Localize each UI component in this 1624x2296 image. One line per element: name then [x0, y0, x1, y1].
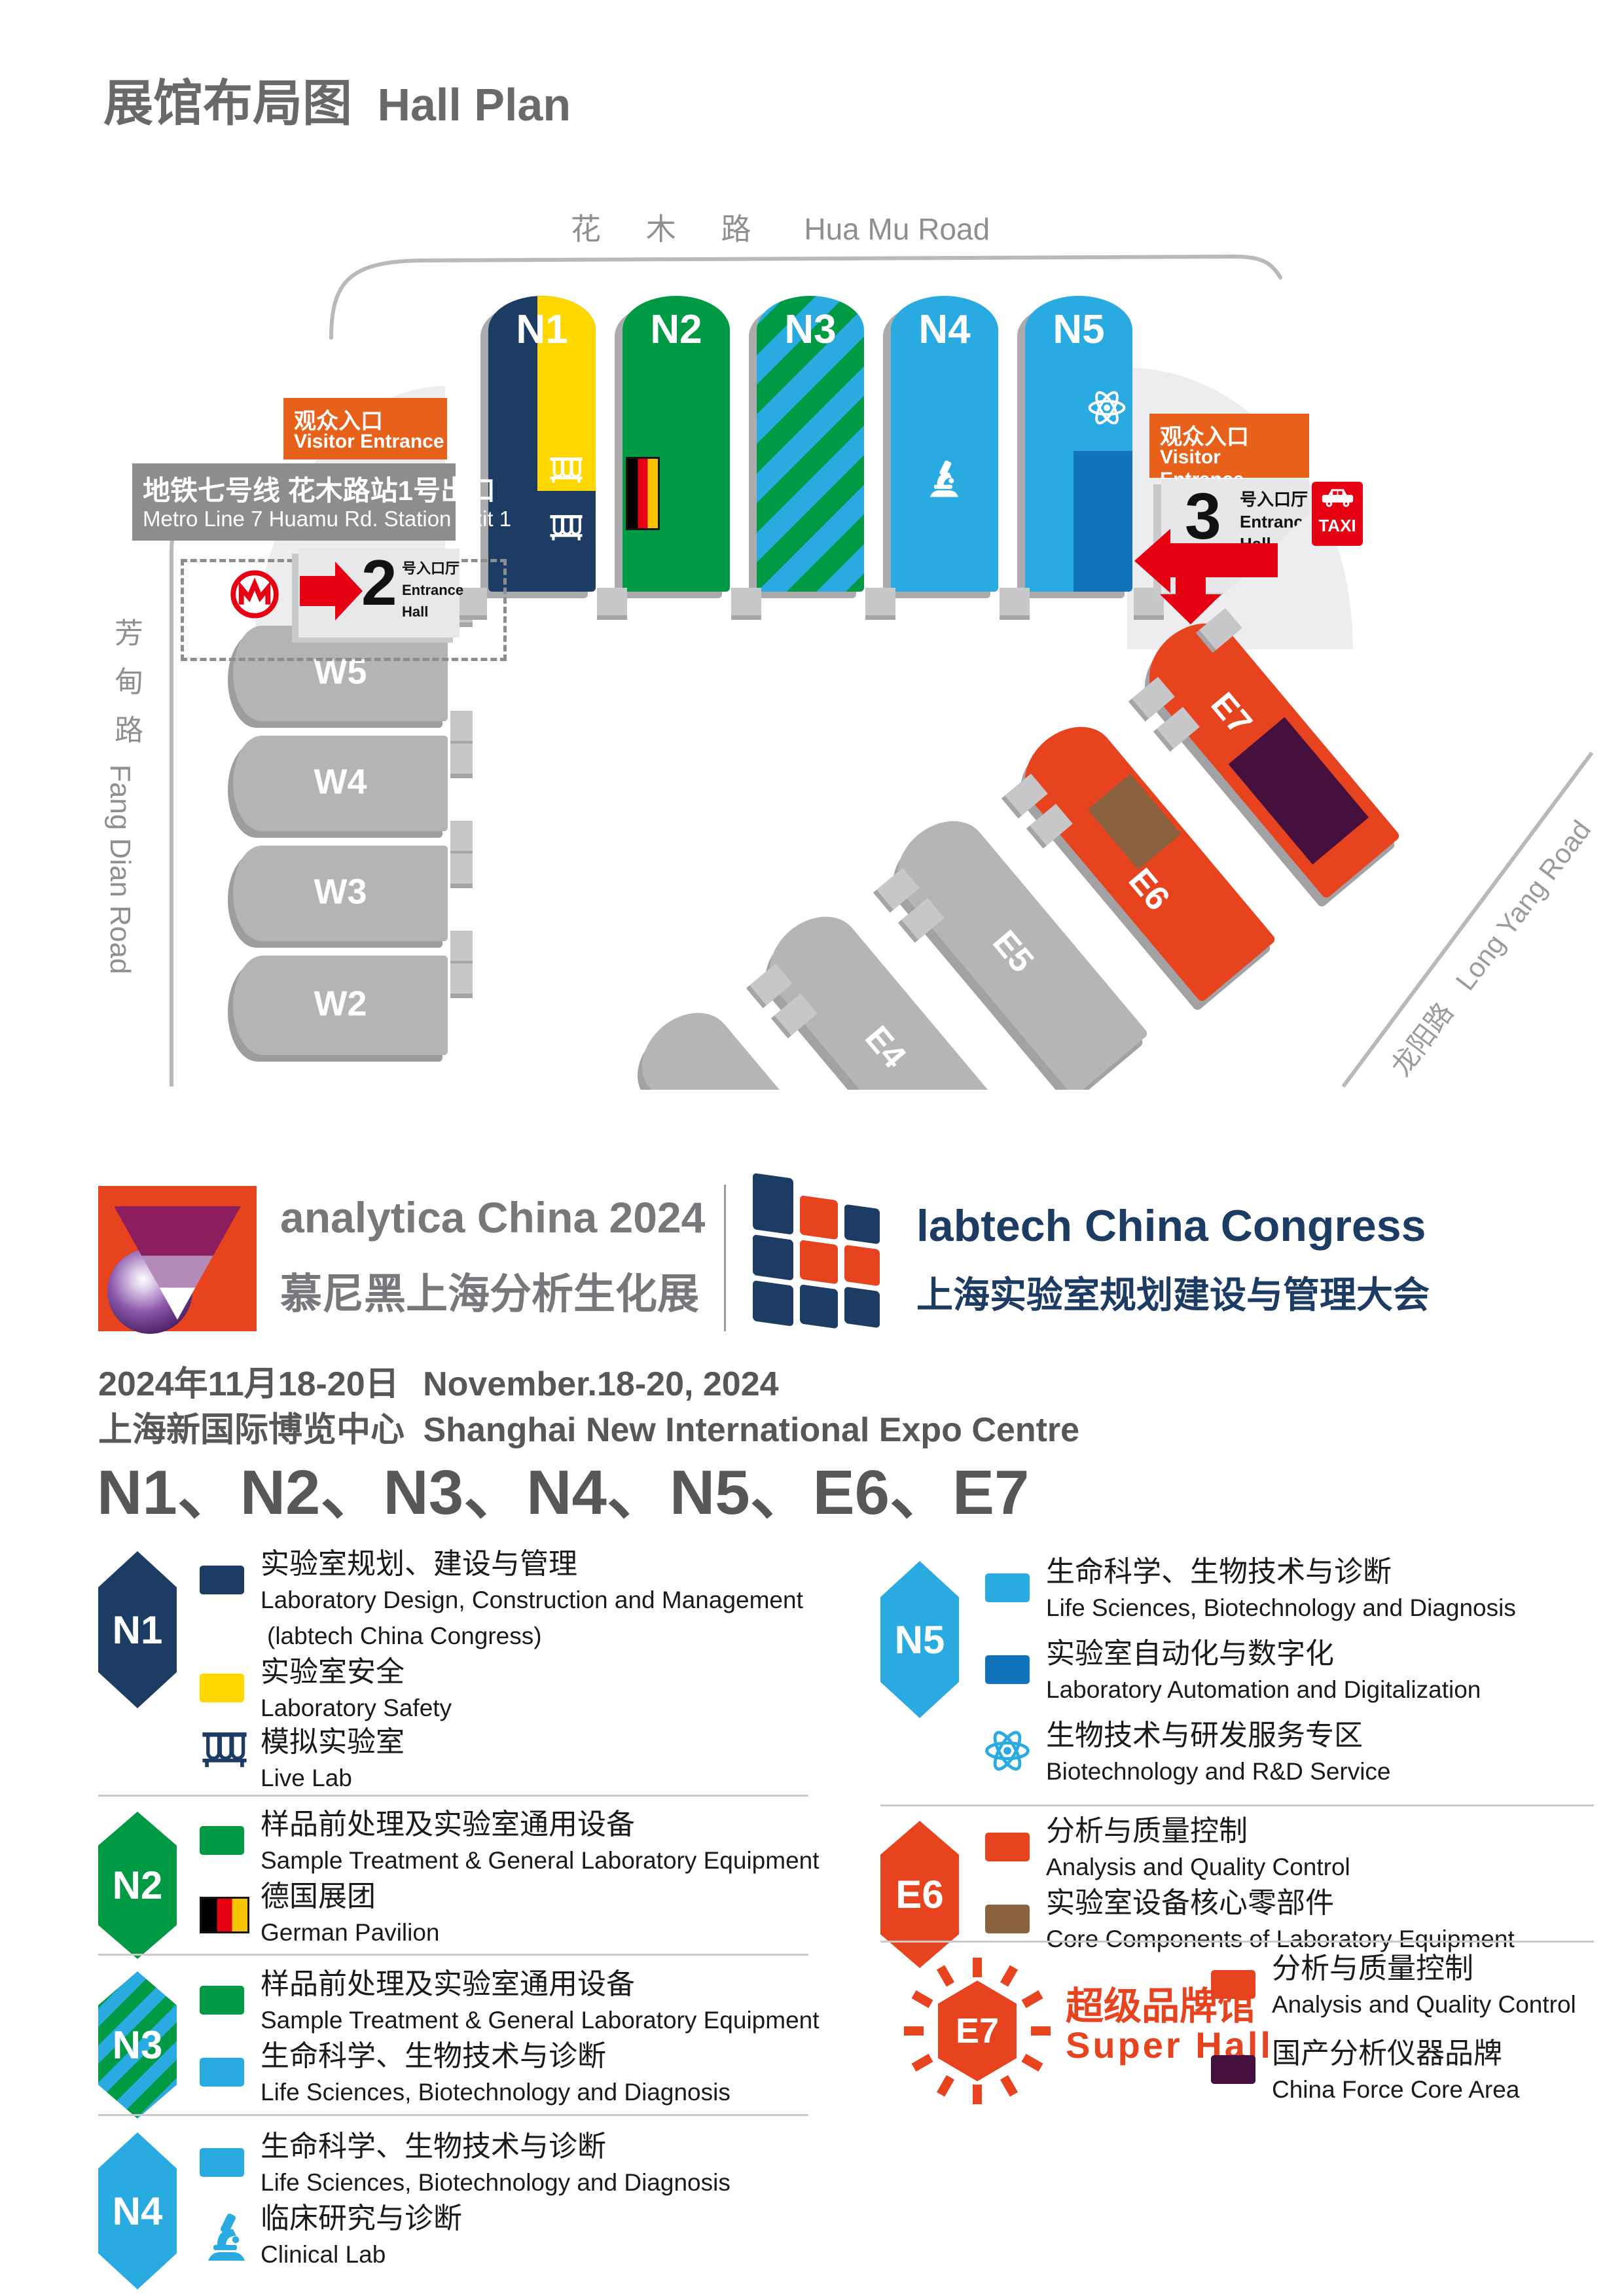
- hall-n2-label: N2: [623, 306, 730, 353]
- live-lab-icon: [549, 512, 584, 543]
- taxi-label: TAXI: [1312, 516, 1363, 536]
- legend-badge-n2-label: N2: [113, 1863, 163, 1908]
- legend-swatch-n2-sample: [200, 1826, 244, 1855]
- metro-sign-cn: 地铁七号线 花木路站1号出口: [143, 469, 496, 509]
- connector: [450, 744, 473, 774]
- legend-text-en: German Pavilion: [261, 1914, 440, 1950]
- legend-swatch-n1-safety: [200, 1674, 244, 1702]
- hall-e7-label: E7: [1203, 685, 1260, 742]
- entrance-3-cn: 号入口厅: [1240, 488, 1312, 511]
- legend-text-en: Biotechnology and R&D Service: [1046, 1753, 1391, 1789]
- biotech-rd-icon: [983, 1727, 1032, 1775]
- legend-item: 生命科学、生物技术与诊断 Life Sciences, Biotechnolog…: [261, 2128, 731, 2200]
- connector: [731, 588, 761, 615]
- legend-text-en: Analysis and Quality Control: [1272, 1986, 1576, 2022]
- labtech-tile: [753, 1173, 793, 1235]
- visitor-entrance-left-en: Visitor Entrance: [294, 431, 444, 453]
- legend-item: 德国展团 German Pavilion: [261, 1878, 440, 1950]
- huamu-road-cn: 花 木 路: [571, 212, 770, 246]
- connector: [450, 853, 473, 884]
- legend-badge-n4-label: N4: [113, 2189, 163, 2234]
- fangdian-road-en: Fang Dian Road: [103, 764, 136, 974]
- hall-plan-poster: 展馆布局图 Hall Plan 花 木 路 Hua Mu Road 芳甸路 Fa…: [0, 0, 1624, 2296]
- legend-text-cn: 分析与质量控制: [1272, 1950, 1576, 1986]
- legend-text-en: Life Sciences, Biotechnology and Diagnos…: [261, 2074, 731, 2110]
- hall-n4: N4: [891, 296, 998, 592]
- legend-item: 模拟实验室 Live Lab: [261, 1724, 405, 1796]
- legend-item: 生命科学、生物技术与诊断 Life Sciences, Biotechnolog…: [1046, 1554, 1516, 1626]
- logo-divider: [724, 1185, 726, 1331]
- hall-n4-label: N4: [891, 306, 998, 353]
- hall-n5-automation-zone: [1074, 451, 1132, 592]
- labtech-tile: [800, 1284, 838, 1329]
- connector: [597, 588, 627, 615]
- hall-n2: N2: [623, 296, 730, 592]
- live-lab-icon: [549, 454, 584, 486]
- event-date-cn: 2024年11月18-20日: [98, 1365, 399, 1403]
- hall-e6-label: E6: [1121, 861, 1178, 918]
- legend-badge-n1-label: N1: [113, 1607, 163, 1653]
- legend-divider: [880, 1941, 1594, 1943]
- legend-text-en: Laboratory Design, Construction and Mana…: [261, 1582, 803, 1618]
- legend-text-cn: 德国展团: [261, 1878, 440, 1914]
- legend-text-cn: 生物技术与研发服务专区: [1046, 1717, 1391, 1753]
- taxi-car-icon: [1318, 486, 1356, 509]
- connector: [450, 821, 473, 851]
- live-lab-icon: [200, 1728, 249, 1771]
- legend-item: 分析与质量控制 Analysis and Quality Control: [1272, 1950, 1576, 2022]
- hall-n1: N1: [488, 296, 596, 592]
- visitor-entrance-right: 观众入口 Visitor Entrance: [1149, 414, 1309, 478]
- legend-text-cn: 生命科学、生物技术与诊断: [261, 2128, 731, 2164]
- legend-item: 国产分析仪器品牌 China Force Core Area: [1272, 2036, 1519, 2108]
- legend-badge-n3-label: N3: [113, 2022, 163, 2068]
- labtech-tile: [753, 1280, 793, 1327]
- labtech-wordmark: labtech China Congress: [916, 1200, 1426, 1251]
- hall-w3: W3: [233, 846, 448, 941]
- legend-text-en: Life Sciences, Biotechnology and Diagnos…: [1046, 1590, 1516, 1626]
- legend-text-cn: 临床研究与诊断: [261, 2200, 462, 2236]
- entrance-2-text: 号入口厅 Entrance Hall: [402, 558, 463, 622]
- event-date: 2024年11月18-20日 November.18-20, 2024: [98, 1356, 779, 1405]
- legend-text-cn: 实验室安全: [261, 1654, 452, 1690]
- legend-swatch-n5-lifesci: [985, 1573, 1030, 1602]
- legend-badge-e6: E6: [880, 1821, 959, 1968]
- legend-divider: [98, 2114, 808, 2116]
- legend-divider: [98, 1795, 808, 1797]
- connector: [1000, 588, 1030, 615]
- legend-badge-n2: N2: [98, 1812, 177, 1959]
- longyang-road-line: [1343, 753, 1592, 1086]
- huamu-road-en: Hua Mu Road: [804, 212, 990, 246]
- hall-n5-label: N5: [1025, 306, 1132, 353]
- legend-item: 实验室安全 Laboratory Safety: [261, 1654, 452, 1726]
- legend-item: 样品前处理及实验室通用设备 Sample Treatment & General…: [261, 1966, 820, 2038]
- legend-item: 分析与质量控制 Analysis and Quality Control: [1046, 1813, 1350, 1885]
- route-arrow-down-icon: [1160, 594, 1221, 624]
- legend-text-cn: 实验室规划、建设与管理: [261, 1546, 803, 1582]
- legend-badge-n1: N1: [98, 1551, 177, 1708]
- german-pavilion-flag-icon: [200, 1897, 249, 1933]
- hall-w4-label: W4: [233, 762, 448, 802]
- clinical-lab-icon: [925, 459, 965, 500]
- route-arrow-stem: [1176, 577, 1206, 594]
- connector: [450, 711, 473, 741]
- legend-swatch-n4-lifesci: [200, 2148, 244, 2177]
- labtech-cn: 上海实验室规划建设与管理大会: [916, 1266, 1430, 1319]
- legend-text-en: China Force Core Area: [1272, 2072, 1519, 2108]
- legend-swatch-n1-design: [200, 1566, 244, 1594]
- metro-sign: 地铁七号线 花木路站1号出口 Metro Line 7 Huamu Rd. St…: [132, 463, 456, 541]
- entrance-2-cn: 号入口厅: [402, 558, 463, 579]
- hall-n3-label: N3: [757, 306, 864, 353]
- hall-n1-label: N1: [488, 306, 596, 353]
- connector: [450, 963, 473, 994]
- legend-text-cn: 实验室设备核心零部件: [1046, 1885, 1515, 1921]
- legend-item: 实验室规划、建设与管理 Laboratory Design, Construct…: [261, 1546, 803, 1654]
- metro-sign-en: Metro Line 7 Huamu Rd. Station Exit 1: [143, 507, 511, 531]
- entrance-2-arrowhead-icon: [335, 562, 363, 620]
- legend-badge-e7-label: E7: [956, 2011, 999, 2051]
- german-pavilion-flag-icon: [626, 457, 660, 530]
- labtech-tile: [844, 1204, 880, 1245]
- entrance-2-en1: Entrance: [402, 579, 463, 601]
- legend-text-cn: 国产分析仪器品牌: [1272, 2036, 1519, 2072]
- connector: [865, 588, 895, 615]
- clinical-lab-icon: [202, 2212, 254, 2265]
- legend-item: 样品前处理及实验室通用设备 Sample Treatment & General…: [261, 1806, 820, 1878]
- event-halls-line: N1、N2、N3、N4、N5、E6、E7: [97, 1441, 1029, 1532]
- legend-swatch-e6-components: [985, 1905, 1030, 1933]
- legend-item: 临床研究与诊断 Clinical Lab: [261, 2200, 462, 2272]
- legend-text-en: Sample Treatment & General Laboratory Eq…: [261, 1842, 820, 1878]
- legend-text-en: Laboratory Safety: [261, 1690, 452, 1726]
- hall-w2: W2: [233, 956, 448, 1055]
- labtech-tile: [800, 1240, 838, 1284]
- labtech-tile: [753, 1234, 793, 1281]
- labtech-tile: [800, 1195, 838, 1240]
- labtech-logo: [753, 1189, 897, 1352]
- labtech-tile: [844, 1287, 880, 1329]
- connector: [450, 931, 473, 961]
- legend-text-cn: 分析与质量控制: [1046, 1813, 1350, 1849]
- legend-item: 生物技术与研发服务专区 Biotechnology and R&D Servic…: [1046, 1717, 1391, 1789]
- legend-text-en: Laboratory Automation and Digitalization: [1046, 1672, 1481, 1708]
- legend-badge-n3: N3: [98, 1971, 177, 2119]
- legend-swatch-e7-chinaforce: [1211, 2055, 1255, 2084]
- legend-divider: [880, 1804, 1594, 1806]
- labtech-tile: [844, 1245, 880, 1287]
- visitor-entrance-left: 观众入口 Visitor Entrance: [283, 398, 447, 459]
- legend-badge-e7-superhall: E7: [902, 1956, 1053, 2106]
- legend-item: 实验室设备核心零部件 Core Components of Laboratory…: [1046, 1885, 1515, 1957]
- legend-divider: [98, 1954, 808, 1956]
- event-date-en: November.18-20, 2024: [423, 1365, 778, 1403]
- legend-text-cn: 实验室自动化与数字化: [1046, 1636, 1481, 1672]
- legend-text-cn: 样品前处理及实验室通用设备: [261, 1966, 820, 2002]
- legend-text-en: Analysis and Quality Control: [1046, 1849, 1350, 1885]
- route-arrow-left-icon: [1134, 529, 1170, 593]
- hall-plan-map: 花 木 路 Hua Mu Road 芳甸路 Fang Dian Road 龙阳路…: [0, 0, 1624, 1090]
- hall-n5: N5: [1025, 296, 1132, 592]
- legend-text-cn: 样品前处理及实验室通用设备: [261, 1806, 820, 1842]
- entrance-2-number: 2: [361, 546, 397, 620]
- legend-badge-n4: N4: [98, 2132, 177, 2289]
- hall-w2-label: W2: [233, 984, 448, 1024]
- fangdian-road-cn: 芳甸路: [105, 618, 147, 763]
- hall-w3-label: W3: [233, 872, 448, 912]
- hall-w4: W4: [233, 736, 448, 831]
- legend-badge-n5-label: N5: [895, 1617, 945, 1662]
- legend-text-en: Clinical Lab: [261, 2236, 462, 2272]
- analytica-cn: 慕尼黑上海分析生化展: [280, 1261, 699, 1321]
- huamu-road-label: 花 木 路 Hua Mu Road: [571, 206, 990, 249]
- legend-text-cn: 生命科学、生物技术与诊断: [1046, 1554, 1516, 1590]
- legend-item: 生命科学、生物技术与诊断 Life Sciences, Biotechnolog…: [261, 2038, 731, 2110]
- legend-swatch-n5-automation: [985, 1655, 1030, 1684]
- legend-swatch-e6-analysis: [985, 1833, 1030, 1861]
- legend-item: 实验室自动化与数字化 Laboratory Automation and Dig…: [1046, 1636, 1481, 1708]
- entrance-2-arrow-icon: [300, 576, 335, 606]
- legend-text-en2: (labtech China Congress): [261, 1618, 803, 1654]
- legend-swatch-n3-sample: [200, 1986, 244, 2015]
- entrance-2-en2: Hall: [402, 601, 463, 622]
- legend-text-cn: 模拟实验室: [261, 1724, 405, 1760]
- entrance-hall-2: 2 号入口厅 Entrance Hall: [298, 548, 460, 637]
- legend-text-en: Life Sciences, Biotechnology and Diagnos…: [261, 2164, 731, 2200]
- legend-swatch-n3-lifesci: [200, 2058, 244, 2087]
- route-arrow-bar: [1170, 543, 1278, 577]
- biotech-rd-icon: [1087, 387, 1127, 428]
- taxi-stand: TAXI: [1312, 482, 1363, 546]
- legend-swatch-e7-analysis: [1211, 1970, 1255, 1999]
- legend-badge-n5: N5: [880, 1561, 959, 1718]
- legend-badge-e6-label: E6: [895, 1872, 943, 1917]
- analytica-wordmark: analytica China 2024: [280, 1193, 705, 1242]
- hall-n3: N3: [757, 296, 864, 592]
- legend-text-en: Sample Treatment & General Laboratory Eq…: [261, 2002, 820, 2038]
- analytica-logo: [98, 1186, 257, 1331]
- shanghai-metro-icon: [229, 565, 280, 623]
- legend-text-en: Live Lab: [261, 1760, 405, 1796]
- legend-text-cn: 生命科学、生物技术与诊断: [261, 2038, 731, 2074]
